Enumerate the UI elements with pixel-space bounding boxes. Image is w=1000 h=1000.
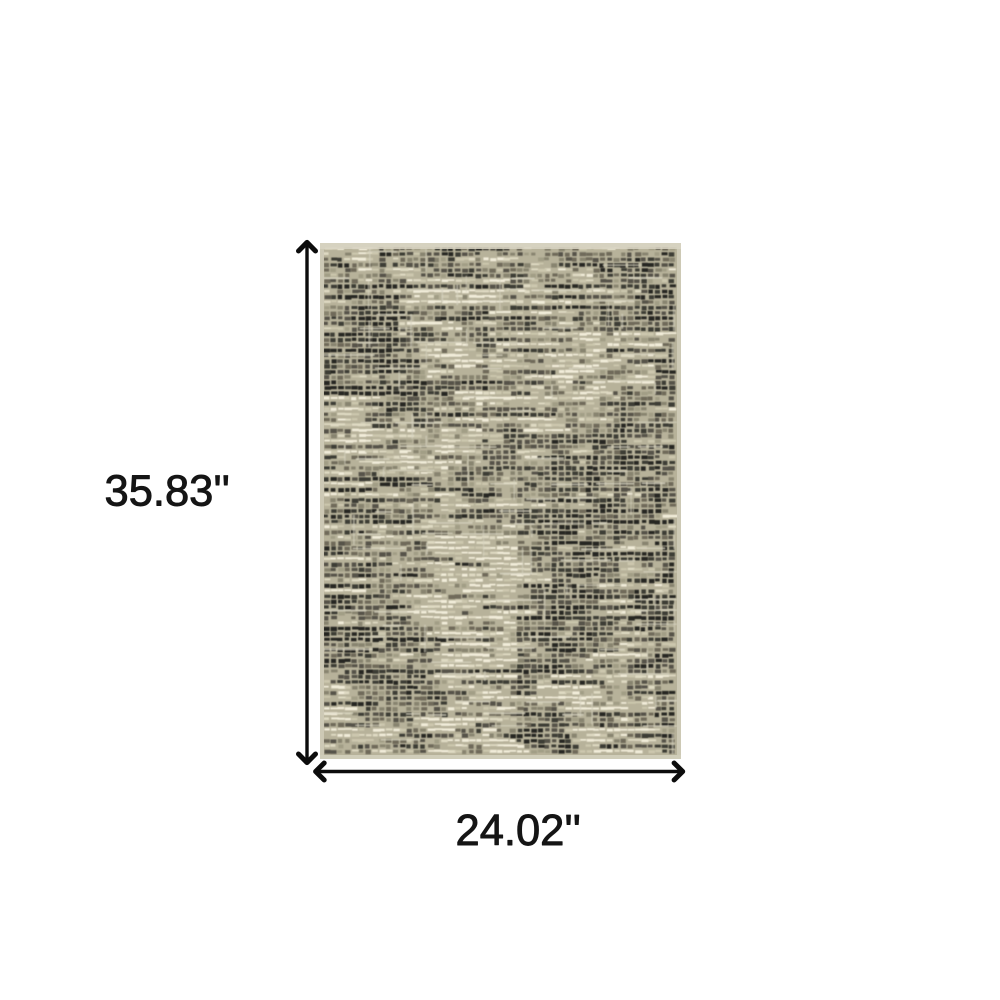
svg-text:24.02'': 24.02'' — [456, 807, 581, 855]
svg-text:35.83'': 35.83'' — [105, 468, 230, 516]
